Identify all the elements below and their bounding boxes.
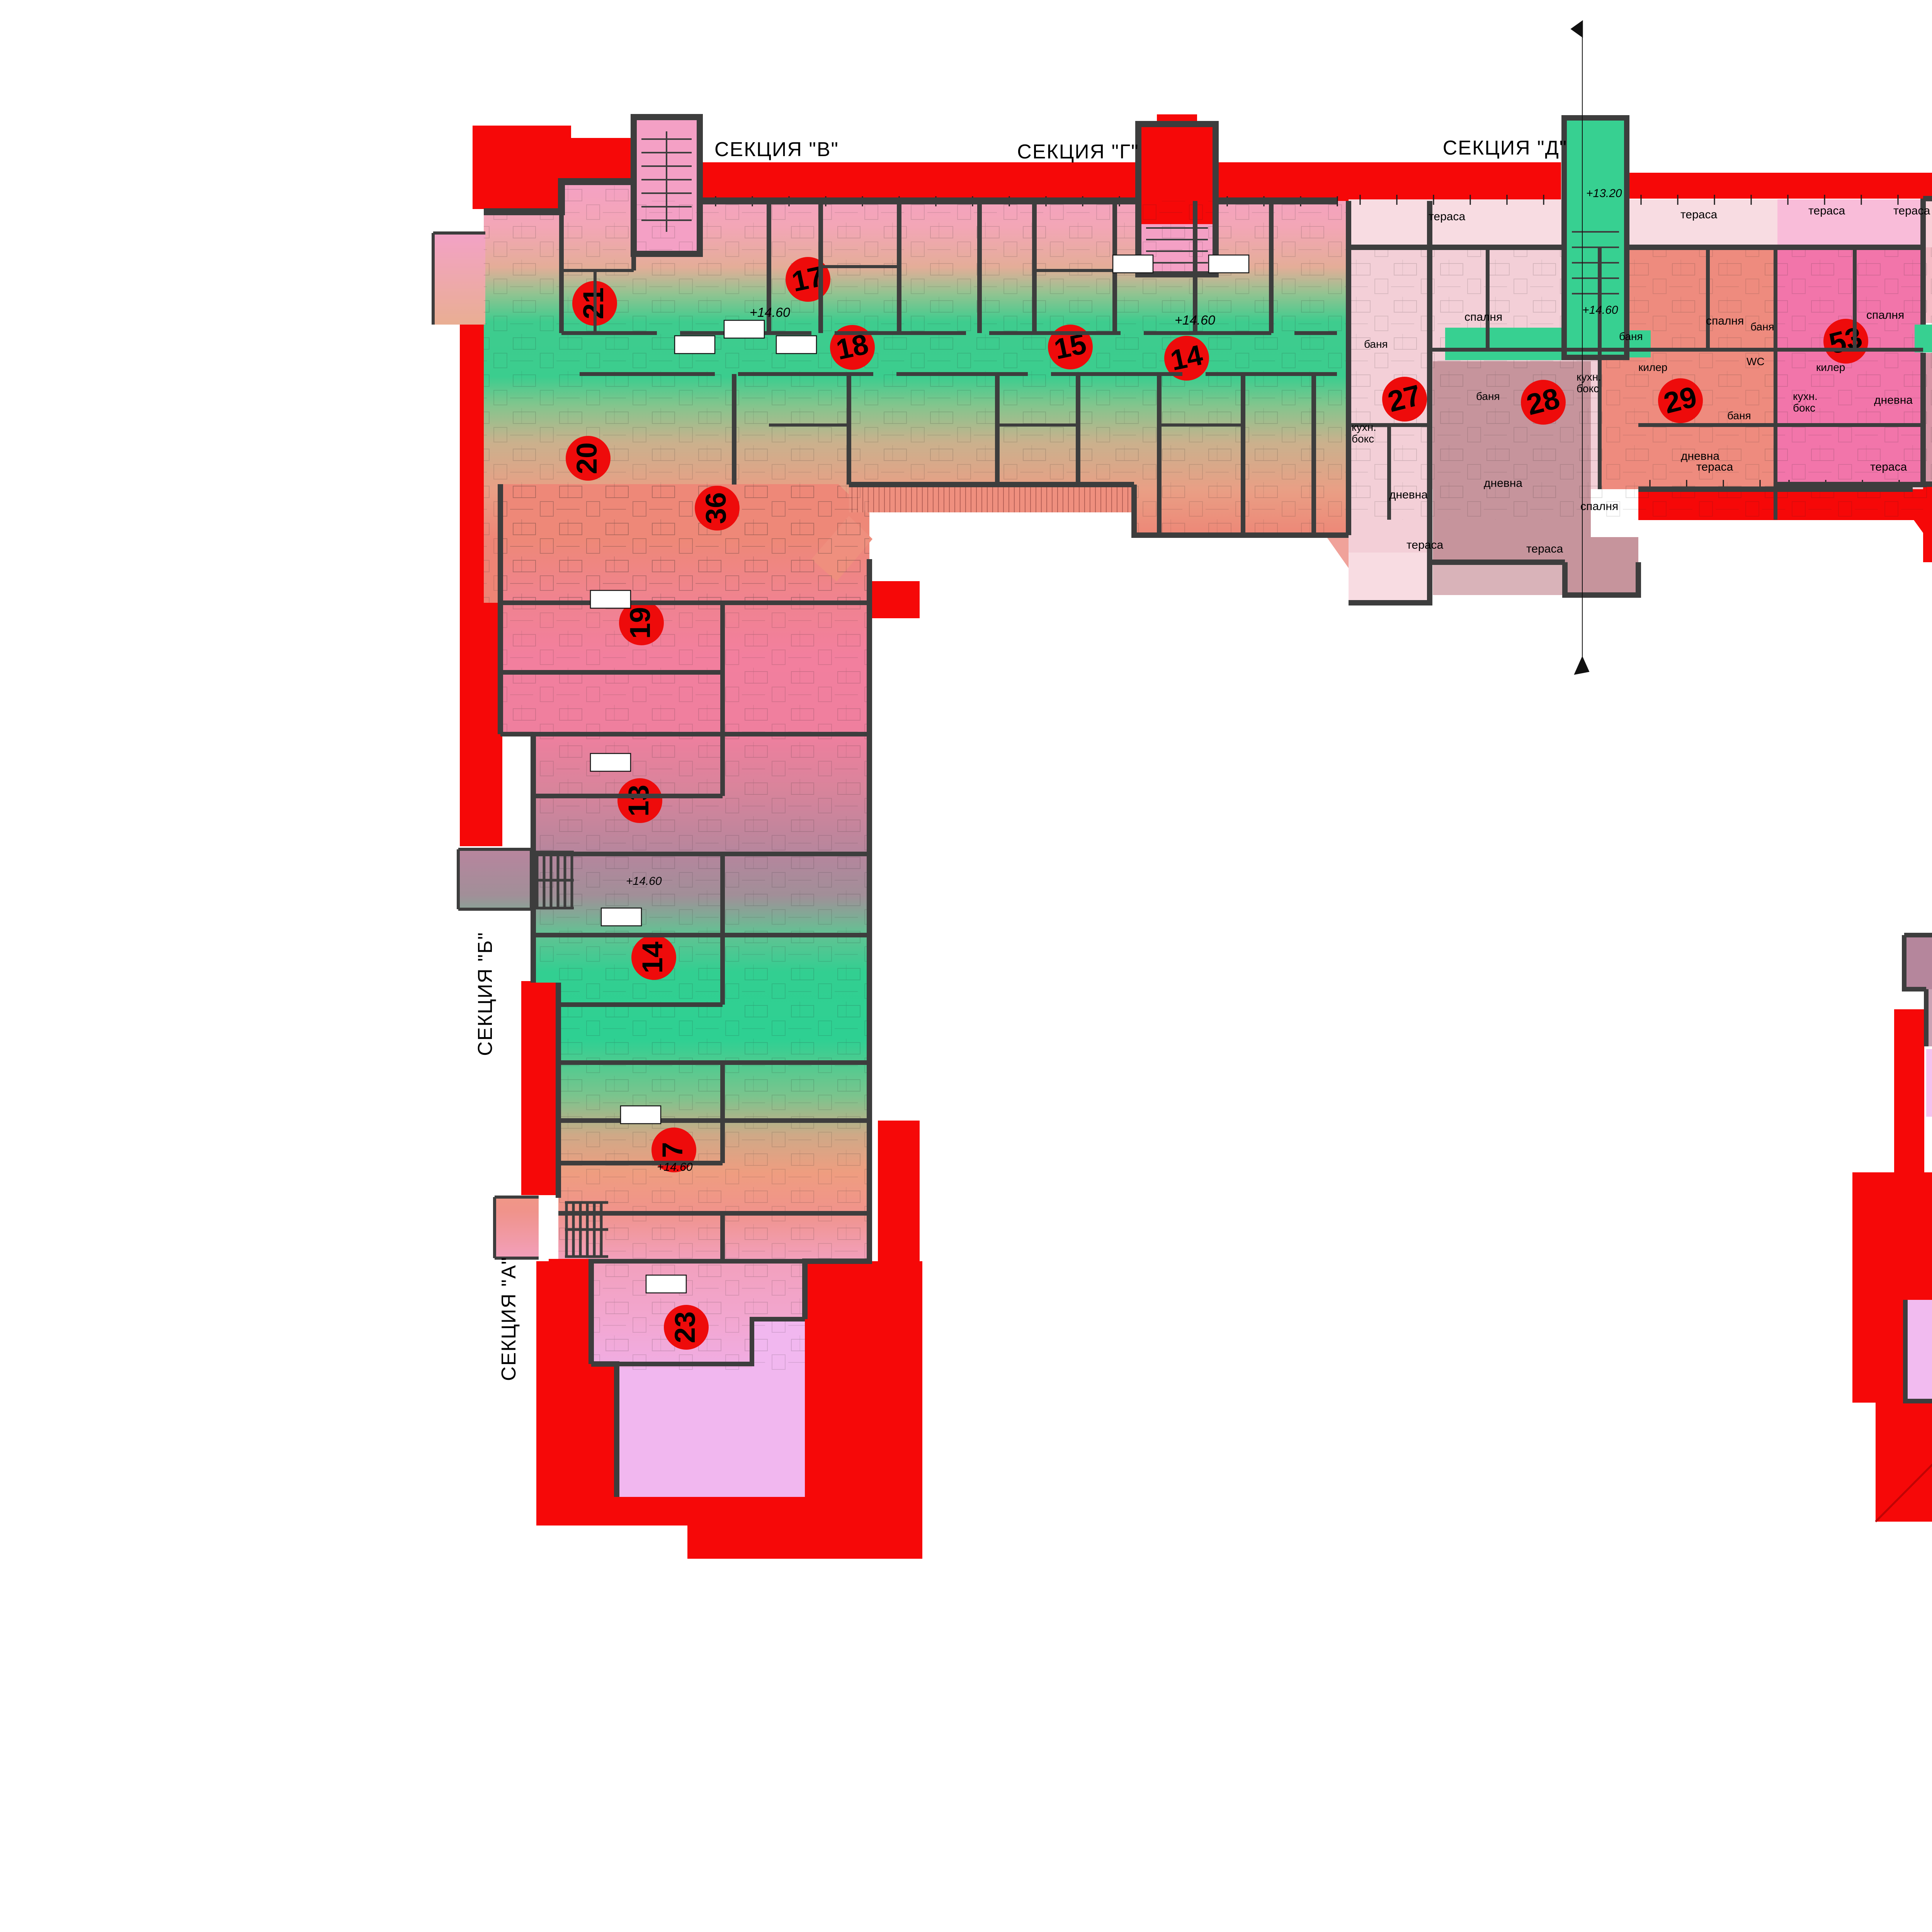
svg-text:кухн.: кухн. bbox=[1793, 390, 1818, 402]
svg-text:тераса: тераса bbox=[1893, 204, 1930, 217]
svg-text:спалня: спалня bbox=[1464, 311, 1502, 323]
svg-text:36: 36 bbox=[700, 492, 732, 524]
svg-text:+13.20: +13.20 bbox=[1586, 187, 1622, 200]
svg-text:тераса: тераса bbox=[1696, 461, 1733, 473]
svg-text:спалня: спалня bbox=[1866, 309, 1904, 321]
svg-text:тераса: тераса bbox=[1680, 208, 1717, 221]
svg-text:кухн.: кухн. bbox=[1352, 421, 1376, 433]
svg-text:WC: WC bbox=[1747, 355, 1765, 367]
svg-text:СЕКЦИЯ "В": СЕКЦИЯ "В" bbox=[714, 138, 839, 161]
svg-text:спалня: спалня bbox=[1706, 315, 1744, 327]
svg-text:19: 19 bbox=[624, 607, 656, 639]
svg-text:тераса: тераса bbox=[1808, 204, 1845, 217]
svg-text:баня: баня bbox=[1476, 390, 1500, 402]
svg-text:14: 14 bbox=[1168, 338, 1206, 376]
svg-text:тераса: тераса bbox=[1870, 461, 1907, 473]
svg-text:бокс: бокс bbox=[1793, 402, 1815, 414]
svg-text:23: 23 bbox=[669, 1311, 701, 1343]
svg-text:дневна: дневна bbox=[1389, 488, 1428, 501]
svg-text:спалня: спалня bbox=[1580, 500, 1618, 513]
svg-text:дневна: дневна bbox=[1874, 394, 1913, 406]
svg-text:бокс: бокс bbox=[1577, 383, 1599, 395]
svg-text:СЕКЦИЯ "Б": СЕКЦИЯ "Б" bbox=[474, 932, 497, 1056]
svg-text:+14.60: +14.60 bbox=[626, 875, 662, 888]
svg-text:20: 20 bbox=[571, 442, 603, 474]
svg-text:килер: килер bbox=[1816, 361, 1845, 373]
svg-text:13: 13 bbox=[622, 785, 655, 816]
svg-text:килер: килер bbox=[1638, 361, 1667, 373]
svg-text:СЕКЦИЯ "Г": СЕКЦИЯ "Г" bbox=[1017, 141, 1139, 163]
svg-text:баня: баня bbox=[1727, 410, 1751, 422]
svg-text:7: 7 bbox=[656, 1142, 689, 1158]
svg-text:баня: баня bbox=[1750, 321, 1774, 333]
svg-text:кухн.: кухн. bbox=[1577, 371, 1601, 383]
svg-text:тераса: тераса bbox=[1526, 543, 1563, 555]
svg-text:дневна: дневна bbox=[1484, 477, 1522, 490]
svg-text:баня: баня bbox=[1364, 338, 1388, 350]
svg-text:21: 21 bbox=[577, 287, 609, 319]
svg-text:бокс: бокс bbox=[1352, 433, 1374, 445]
svg-text:+14.60: +14.60 bbox=[1175, 313, 1215, 328]
svg-text:+14.60: +14.60 bbox=[657, 1161, 693, 1173]
svg-text:14: 14 bbox=[636, 942, 668, 973]
svg-text:баня: баня bbox=[1619, 330, 1643, 342]
svg-text:тераса: тераса bbox=[1429, 210, 1465, 223]
svg-text:СЕКЦИЯ "Д": СЕКЦИЯ "Д" bbox=[1443, 137, 1568, 159]
svg-text:+14.60: +14.60 bbox=[1582, 304, 1618, 316]
svg-text:тераса: тераса bbox=[1406, 539, 1443, 551]
svg-text:СЕКЦИЯ "А": СЕКЦИЯ "А" bbox=[498, 1257, 520, 1381]
svg-text:+14.60: +14.60 bbox=[750, 305, 790, 320]
